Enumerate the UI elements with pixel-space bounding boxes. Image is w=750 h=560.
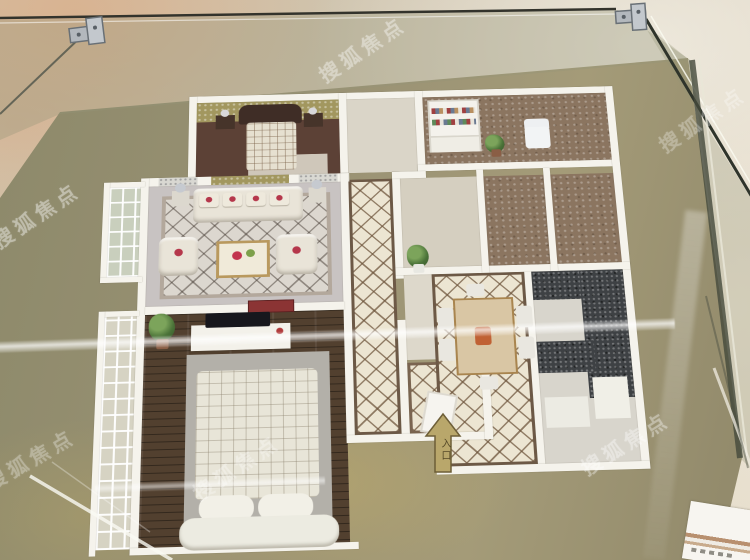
- glass-right-front-shadow: [706, 296, 748, 468]
- glass-corner-highlight: [30, 476, 172, 560]
- glass-front-edges: [0, 0, 750, 560]
- photo-scene: 入口 搜狐焦点 搜狐焦点 搜狐焦点 搜狐焦点 搜狐焦点 搜狐焦点: [0, 0, 750, 560]
